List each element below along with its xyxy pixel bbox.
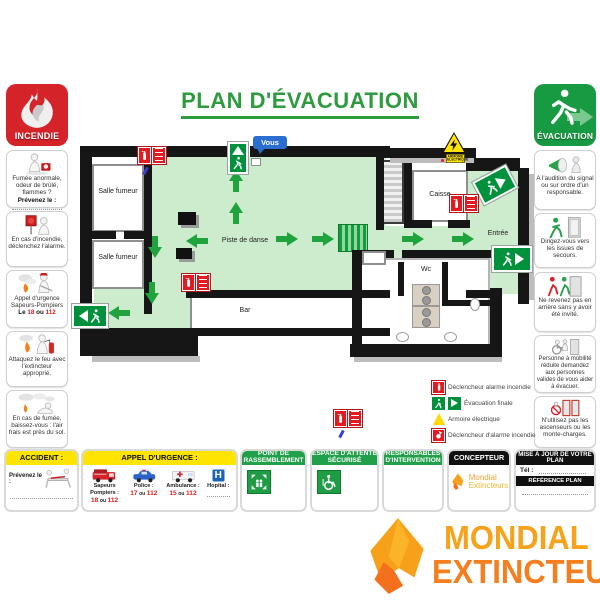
reference-plan-band: RÉFÉRENCE PLAN	[516, 476, 594, 486]
assembly-point-panel: POINT DE RASSEMBLEMENT	[240, 449, 307, 512]
emergency-label: Sapeurs Pompiers :	[90, 483, 119, 496]
wc-sinks	[412, 306, 440, 328]
you-are-here-bubble: Vous	[253, 136, 287, 149]
stretcher-figures-icon	[43, 467, 74, 491]
label-wc: Wc	[412, 266, 440, 274]
exit-sign-entrance-lower	[492, 246, 532, 272]
emergency-label: Ambulance :	[166, 483, 200, 489]
evac-arrow-right	[276, 232, 298, 246]
label-piste-de-danse: Piste de danse	[205, 237, 285, 245]
emergency-entry-ambulance: Ambulance : 15 ou 112	[163, 467, 202, 505]
evac-arrow-up	[229, 202, 243, 224]
dotted-line	[207, 492, 230, 497]
emergency-number: 17	[130, 490, 137, 497]
designer-panel: CONCEPTEUR Mondial Extincteurs	[447, 449, 511, 512]
evacuation-card-retour: Ne revenez pas en arrière sans y avoir é…	[534, 272, 596, 332]
mondial-flame-icon	[450, 473, 466, 491]
wall-segment	[404, 220, 432, 228]
wall-segment	[442, 262, 448, 304]
accident-title: ACCIDENT :	[6, 451, 77, 465]
exit-arrow-left-icon	[79, 310, 88, 322]
extinguisher-icon	[138, 147, 151, 164]
safe-waiting-area-title: ESPACE D'ATTENTE SÉCURISÉ	[312, 451, 377, 465]
brand-line2: Extincteurs	[469, 482, 509, 490]
emergency-sep: ou	[178, 491, 184, 497]
evacuation-text-1: A l'audition du signal ou sur ordre d'un…	[536, 175, 593, 196]
no-return-figure-icon	[536, 275, 594, 297]
evacuation-badge-label: ÉVACUATION	[534, 131, 596, 141]
incendie-bold-1: Prévenez le :	[8, 197, 66, 204]
wheelchair-help-figure-icon	[536, 338, 594, 356]
police-car-icon	[132, 468, 157, 483]
exit-sign-left	[72, 304, 108, 328]
emergency-number: 112	[147, 490, 158, 497]
title-wrap: PLAN D'ÉVACUATION	[120, 88, 480, 119]
extinguisher-sign	[182, 274, 210, 291]
wc-toilet	[444, 332, 457, 342]
phone-alert-figure-icon	[8, 153, 66, 175]
incendie-badge-label: INCENDIE	[6, 131, 68, 141]
wall-shadow	[529, 174, 534, 300]
hospital-icon: H	[211, 468, 226, 483]
assembly-point-icon	[247, 470, 271, 494]
legend-label: Déclencheur d'alarme incendie	[448, 432, 536, 439]
logo-line1: MONDIAL	[444, 522, 589, 554]
logo-line2: EXTINCTEUR	[432, 556, 600, 588]
evac-arrow-right	[402, 232, 424, 246]
wc-toilet	[396, 332, 409, 342]
wall-segment	[80, 146, 92, 312]
responders-panel: RESPONSABLES D'INTERVENTION	[382, 449, 444, 512]
emergency-call-panel: APPEL D'URGENCE : Sapeurs Pompiers : 18 …	[81, 449, 238, 512]
extinguisher-icon	[182, 274, 195, 291]
wall-segment	[518, 268, 529, 304]
wall-segment	[448, 220, 470, 228]
emergency-entry-pompiers: Sapeurs Pompiers : 18 ou 112	[85, 467, 124, 505]
extinguisher-instructions-icon	[348, 410, 362, 427]
legend-exit-arrow-icon	[448, 397, 461, 410]
wall-segment	[518, 168, 529, 254]
mondial-extincteur-flame-logo	[362, 516, 434, 596]
safe-waiting-area-panel: ESPACE D'ATTENTE SÉCURISÉ	[310, 449, 379, 512]
wall-segment	[352, 250, 362, 352]
red-dot-marker	[441, 159, 444, 162]
evacuation-card-signal: A l'audition du signal ou sur ordre d'un…	[534, 150, 596, 210]
incendie-text-5: En cas de fumée, baissez-vous : l'air fr…	[9, 415, 65, 436]
dotted-line	[522, 490, 588, 495]
tel-label: Tél :	[520, 467, 533, 474]
emergency-call-title: APPEL D'URGENCE :	[83, 451, 236, 465]
extinguisher-sign	[334, 410, 362, 427]
evacuation-text-4: Personne à mobilité réduite demandez aux…	[537, 356, 593, 390]
evac-arrow-left	[108, 306, 130, 320]
wall-segment	[466, 158, 520, 171]
evac-arrow-right	[312, 232, 334, 246]
evacuation-stairs	[338, 224, 368, 252]
extinguisher-instructions-icon	[464, 195, 478, 212]
evacuation-badge: ÉVACUATION	[534, 84, 596, 146]
flame-icon	[16, 86, 58, 137]
label-entree: Entrée	[480, 230, 516, 238]
legend-electrical-icon	[432, 413, 445, 426]
accident-notify-label: Prévenez le :	[9, 473, 43, 485]
urgence-prefix: Le	[18, 309, 25, 316]
wall-segment	[84, 328, 198, 356]
armoire-tag-line2: ELECTRIQUE	[447, 158, 468, 161]
evacuation-text-3: Ne revenez pas en arrière sans y avoir é…	[538, 297, 592, 318]
emergency-sep: ou	[100, 498, 106, 504]
wall-shadow	[354, 357, 502, 362]
legend-label: Évacuation finale	[464, 400, 513, 407]
evacuation-card-pmr: Personne à mobilité réduite demandez aux…	[534, 335, 596, 393]
urgence-sep: ou	[36, 309, 44, 316]
wall-segment	[350, 344, 502, 357]
urgence-number-18: 18	[27, 309, 34, 316]
wall-shadow	[92, 356, 200, 362]
incendie-card-fumee: En cas de fumée, baissez-vous : l'air fr…	[6, 390, 68, 448]
emergency-sep: ou	[139, 491, 145, 497]
label-salle-fumeur-2: Salle fumeur	[94, 254, 142, 262]
megaphone-figure-icon	[536, 153, 594, 175]
assembly-point-title: POINT DE RASSEMBLEMENT	[242, 451, 305, 465]
wheelchair-icon	[317, 470, 341, 494]
label-salle-fumeur-1: Salle fumeur	[94, 188, 142, 196]
pillar	[178, 212, 196, 225]
wall-segment	[92, 231, 116, 239]
evacuation-card-ascenseur: N'utilisez pas les ascenseurs ou les mon…	[534, 396, 596, 448]
wall-segment	[124, 231, 146, 239]
incendie-card-pompiers: Appel d'urgence Sapeurs-Pompiers Le 18 o…	[6, 270, 68, 328]
wall-segment	[466, 290, 494, 298]
label-bar: Bar	[225, 307, 265, 315]
emergency-entry-hopital: H Hopital :	[203, 467, 234, 505]
wall-segment	[402, 250, 496, 258]
evacuation-text-2: Dirigez-vous vers les issues de secours.	[541, 238, 590, 259]
evacuation-card-issues: Dirigez-vous vers les issues de secours.	[534, 213, 596, 268]
extinguisher-icon	[450, 195, 463, 212]
emergency-number: 112	[108, 497, 119, 504]
plan-update-panel: MISE À JOUR DE VOTRE PLAN Tél : RÉFÉRENC…	[514, 449, 596, 512]
wall-segment	[376, 156, 384, 230]
dotted-line	[12, 205, 62, 210]
incendie-badge: INCENDIE	[6, 84, 68, 146]
dotted-line	[10, 494, 73, 499]
you-are-here-dot	[251, 158, 261, 166]
room-salle-fumeur-2	[92, 240, 144, 289]
dotted-line	[539, 469, 586, 474]
evac-arrow-right	[452, 232, 474, 246]
incendie-card-prevenir: Fumée anormale, odeur de brûlé, flammes …	[6, 150, 68, 208]
legend-label: Déclencheur alarme incendie	[448, 384, 531, 391]
evacuation-runner-icon	[546, 86, 580, 133]
emergency-label: Police :	[134, 483, 154, 489]
wc-toilet	[470, 298, 480, 311]
step-box	[362, 251, 386, 265]
room-salle-fumeur-1	[92, 164, 144, 232]
legend-row: Déclencheur alarme incendie	[432, 380, 531, 394]
exit-runner-icon	[501, 251, 514, 267]
emergency-number: 112	[186, 490, 197, 497]
incendie-text-4: Attaquez le feu avec l'extincteur approp…	[8, 356, 65, 377]
pillar	[176, 248, 192, 259]
wc-sinks	[412, 284, 440, 306]
legend-row: Déclencheur d'alarme incendie	[432, 428, 536, 442]
evacuation-plan-poster: PLAN D'ÉVACUATION INCENDIE Fumée anormal…	[0, 0, 600, 600]
extinguisher-icon	[334, 410, 347, 427]
responders-title: RESPONSABLES D'INTERVENTION	[384, 451, 442, 465]
extinguisher-instructions-icon	[152, 147, 166, 164]
incendie-card-alarme: En cas d'incendie, déclenchez l'alarme.	[6, 211, 68, 267]
incendie-card-extincteur: Attaquez le feu avec l'extincteur approp…	[6, 331, 68, 387]
wall-segment	[404, 162, 412, 228]
incendie-text-1: Fumée anormale, odeur de brûlé, flammes …	[12, 175, 61, 196]
evac-arrow-down	[145, 282, 159, 304]
evacuation-text-5: N'utilisez pas les ascenseurs ou les mon…	[540, 417, 591, 438]
plan-update-title: MISE À JOUR DE VOTRE PLAN	[516, 451, 594, 465]
legend-row: Évacuation finale	[432, 396, 513, 410]
extinguisher-sign	[450, 195, 478, 212]
lightning-bolt-icon	[450, 139, 458, 151]
ambulance-icon	[171, 468, 196, 483]
exit-arrow-right-icon	[515, 253, 524, 265]
exit-door-figure-icon	[536, 216, 594, 238]
legend-extinguisher-icon	[432, 381, 445, 394]
exit-arrow-up-icon	[232, 146, 244, 155]
emergency-entry-police: Police : 17 ou 112	[124, 467, 163, 505]
accident-panel: ACCIDENT : Prévenez le :	[4, 449, 79, 512]
no-elevator-icon	[536, 399, 594, 417]
incendie-text-3: Appel d'urgence Sapeurs-Pompiers	[11, 295, 63, 309]
exit-runner-icon	[232, 156, 244, 170]
evac-arrow-left	[186, 234, 208, 248]
emergency-number: 18	[91, 497, 98, 504]
legend-label: Armoire électrique	[448, 416, 500, 423]
urgence-number-112: 112	[46, 309, 56, 316]
exit-runner-icon	[89, 308, 102, 324]
fire-alarm-figure-icon	[8, 214, 66, 236]
extinguisher-sign	[138, 147, 166, 164]
legend-exit-man-icon	[432, 397, 445, 410]
wall-segment	[398, 262, 404, 296]
wall-segment	[442, 300, 492, 306]
incendie-text-2: En cas d'incendie, déclenchez l'alarme.	[8, 236, 65, 250]
exit-sign-top	[228, 142, 248, 174]
emergency-label: Hopital :	[207, 483, 229, 489]
evac-arrow-down	[148, 236, 162, 258]
you-are-here-label: Vous	[261, 138, 279, 147]
armoire-electrique-tag: ARMOIRE ELECTRIQUE	[446, 154, 465, 163]
extinguisher-figure-icon	[8, 334, 66, 356]
pen-mark	[338, 430, 344, 438]
legend-row: Armoire électrique	[432, 412, 500, 426]
emergency-number: 15	[169, 490, 176, 497]
crawl-smoke-figure-icon	[8, 393, 66, 415]
firefighter-figure-icon	[8, 273, 66, 295]
page-title: PLAN D'ÉVACUATION	[181, 88, 419, 119]
legend-call-point-icon	[432, 429, 445, 442]
fire-truck-icon	[92, 468, 117, 483]
designer-title: CONCEPTEUR	[449, 451, 509, 465]
extinguisher-instructions-icon	[196, 274, 210, 291]
